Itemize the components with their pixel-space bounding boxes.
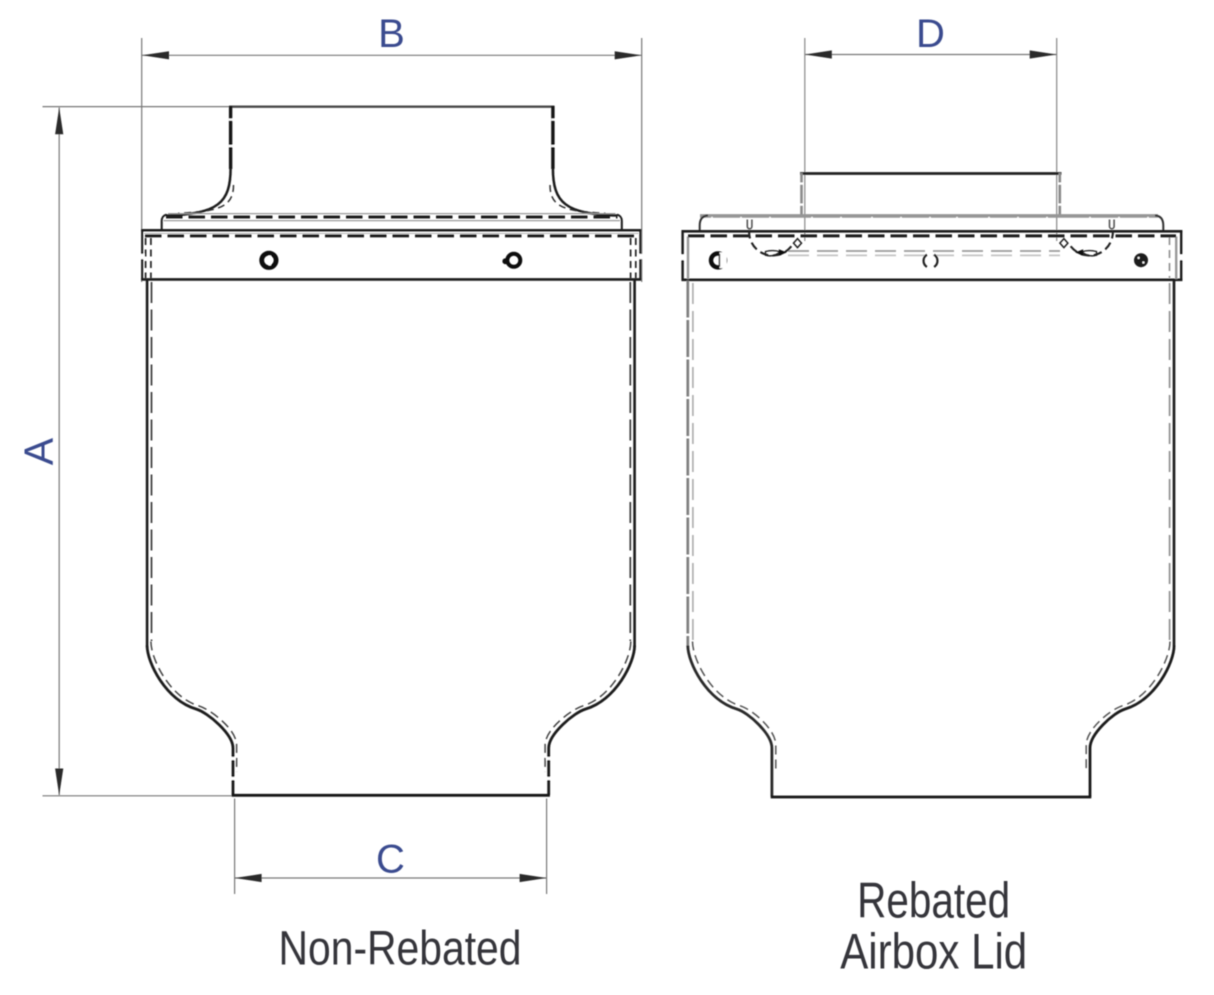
svg-text:Airbox Lid: Airbox Lid	[840, 924, 1027, 980]
svg-text:A: A	[16, 437, 62, 465]
svg-text:Non-Rebated: Non-Rebated	[279, 923, 522, 976]
svg-text:B: B	[378, 12, 405, 56]
svg-text:C: C	[376, 838, 405, 882]
svg-text:Rebated: Rebated	[857, 873, 1010, 929]
svg-text:D: D	[916, 12, 945, 56]
